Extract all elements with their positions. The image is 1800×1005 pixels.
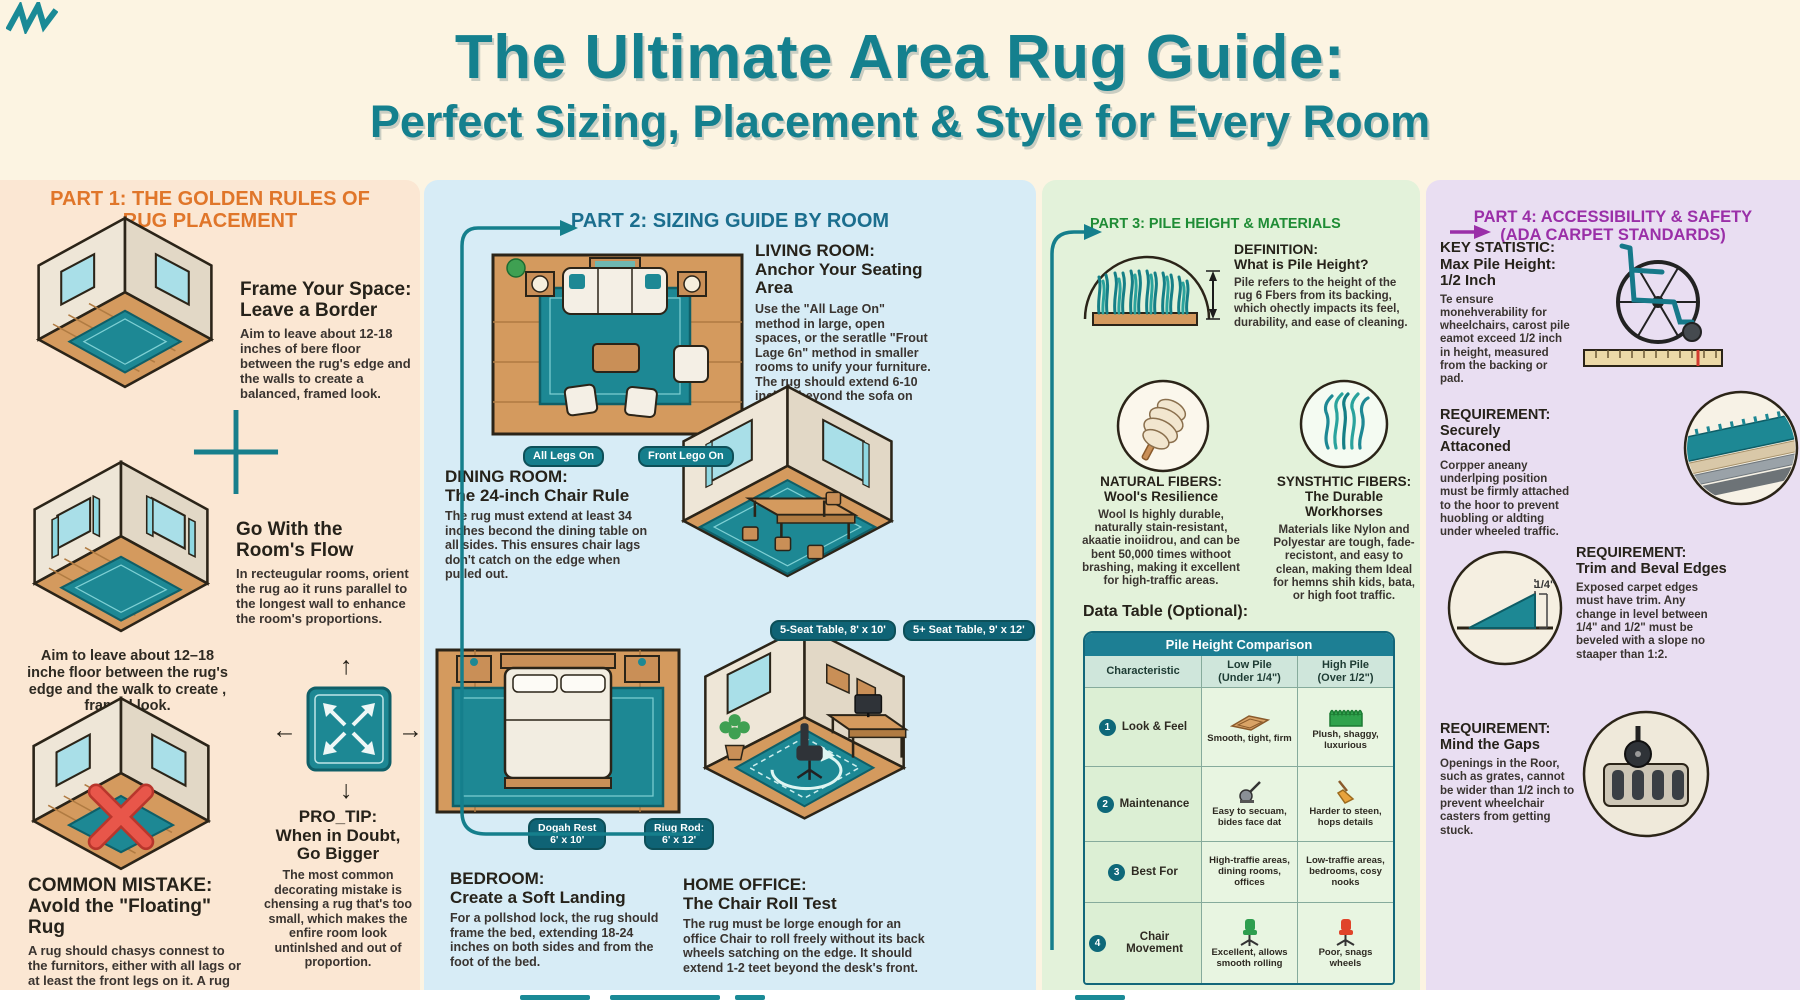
cell-text: Easy to secuam, bides face dat	[1206, 807, 1293, 829]
bedroom-illustration	[435, 648, 681, 814]
home-office-title: HOME OFFICE: The Chair Roll Test	[683, 876, 933, 913]
key-statistic-title: KEY STATISTIC: Max Pile Height: 1/2 Inch	[1440, 240, 1572, 290]
bottom-dash	[520, 995, 590, 1000]
requirement-body: Corpper aneany underlping position must …	[1440, 460, 1572, 540]
data-table-label: Data Table (Optional):	[1083, 603, 1248, 621]
rule-title: Go With the Room's Flow	[236, 520, 416, 562]
arrow-left-icon: ←	[272, 718, 297, 743]
office-chair-red-icon	[1333, 917, 1358, 946]
panel-part4: PART 4: ACCESSIBILITY & SAFETY (ADA CARP…	[1426, 180, 1800, 1005]
flat-rug-icon	[1230, 710, 1270, 732]
home-office-section: HOME OFFICE: The Chair Roll Test The rug…	[683, 876, 933, 975]
definition-title: DEFINITION: What is Pile Height?	[1234, 242, 1412, 273]
requirement-title: REQUIREMENT: Trim and Beval Edges	[1576, 546, 1728, 578]
column-header: Characteristic	[1085, 656, 1201, 687]
rule-title: Frame Your Space: Leave a Border	[240, 280, 412, 322]
cell-text: Low-traffie areas, bedrooms, cosy nooks	[1302, 856, 1389, 889]
key-statistic-body: Te ensure monehverability for wheelchair…	[1440, 294, 1572, 387]
pile-height-comparison-table: Pile Height Comparison Characteristic Lo…	[1083, 631, 1395, 985]
column-header: High Pile (Over 1/2")	[1297, 656, 1393, 687]
cell-text: Harder to steen, hops details	[1302, 807, 1389, 829]
arrow-up-icon: ↑	[340, 654, 353, 679]
arrow-down-icon: ↓	[340, 778, 353, 803]
bevel-annotation: 1/4"	[1535, 579, 1556, 591]
requirement-body: Openings in the Roor, such as grates, ca…	[1440, 758, 1578, 838]
requirement-title: REQUIREMENT: Securely Attaconed	[1440, 408, 1572, 456]
synthetic-fibers-icon	[1298, 378, 1390, 470]
area-rug-guide-poster: The Ultimate Area Rug Guide: Perfect Siz…	[0, 0, 1800, 1005]
natural-fibers-title: NATURAL FIBERS: Wool's Resilience	[1082, 475, 1240, 505]
label-bed-rug-right: Riug Rod: 6' x 12'	[644, 818, 714, 850]
row-name: Best For	[1131, 866, 1178, 878]
requirement-securely-attached-section: REQUIREMENT: Securely Attaconed Corpper …	[1440, 408, 1572, 540]
page-subtitle: Perfect Sizing, Placement & Style for Ev…	[0, 96, 1800, 148]
shag-rug-icon	[1326, 702, 1366, 728]
definition-body: Pile refers to the height of the rug 6 F…	[1234, 277, 1412, 330]
corner-scribble-decoration	[6, 2, 58, 34]
wool-yarn-icon	[1115, 378, 1211, 474]
table-row: 2Maintenance Easy to secuam, bides face …	[1085, 766, 1393, 841]
bottom-dash	[610, 995, 720, 1000]
cell-text: Plush, shaggy, luxurious	[1302, 730, 1389, 752]
requirement-title: REQUIREMENT: Mind the Gaps	[1440, 722, 1578, 754]
pro-tip-title: PRO_TIP: When in Doubt, Go Bigger	[258, 808, 418, 864]
label-bed-rug-left: Dogah Rest 6' x 10'	[528, 818, 606, 850]
pro-tip: PRO_TIP: When in Doubt, Go Bigger The mo…	[258, 808, 418, 970]
bottom-dash	[735, 995, 765, 1000]
label-five-plus-seat-table: 5+ Seat Table, 9' x 12'	[903, 620, 1035, 641]
table-header-row: Characteristic Low Pile (Under 1/4") Hig…	[1085, 656, 1393, 687]
pile-height-illustration	[1075, 238, 1220, 340]
floor-grate-illustration	[1580, 708, 1712, 840]
bedroom-section: BEDROOM: Create a Soft Landing For a pol…	[450, 870, 665, 969]
column-header: Low Pile (Under 1/4")	[1201, 656, 1297, 687]
dining-room-body: The rug must extend at least 34 inches b…	[445, 509, 657, 582]
rule-body: In recteugular rooms, orient the rug ao …	[236, 566, 416, 626]
part3-header: PART 3: PILE HEIGHT & MATERIALS	[1090, 216, 1341, 233]
common-mistake: COMMON MISTAKE: Avold the "Floating" Rug…	[28, 876, 243, 1005]
bottom-dash	[1075, 995, 1125, 1000]
row-name: Maintenance	[1120, 798, 1190, 810]
synthetic-fibers-section: SYNSTHTIC FIBERS: The Durable Workhorses…	[1268, 475, 1420, 604]
requirement-mind-gaps-section: REQUIREMENT: Mind the Gaps Openings in t…	[1440, 722, 1578, 838]
requirement-body: Exposed carpet edges must have trim. Any…	[1576, 582, 1728, 662]
natural-fibers-body: Wool Is highly durable, naturally stain-…	[1082, 509, 1240, 589]
definition-section: DEFINITION: What is Pile Height? Pile re…	[1234, 242, 1412, 330]
bedroom-body: For a pollshod lock, the rug should fram…	[450, 911, 665, 969]
arrow-right-icon: →	[398, 718, 423, 743]
dining-room-section: DINING ROOM: The 24-inch Chair Rule The …	[445, 468, 657, 582]
row-number-badge: 4	[1089, 935, 1106, 952]
pro-tip-body: The most common decorating mistake is ch…	[258, 868, 418, 970]
carpet-layers-illustration	[1681, 388, 1800, 508]
vacuum-icon	[1237, 779, 1263, 805]
iso-room-curtains-illustration	[18, 456, 224, 636]
table-row: 1Look & Feel Smooth, tight, firm Plush, …	[1085, 687, 1393, 766]
label-all-legs-on: All Legs On	[523, 446, 604, 467]
label-five-seat-table: 5-Seat Table, 8' x 10'	[770, 620, 896, 641]
table-title: Pile Height Comparison	[1085, 633, 1393, 656]
part2-header: PART 2: SIZING GUIDE BY ROOM	[530, 210, 930, 232]
office-chair-green-icon	[1237, 917, 1262, 946]
key-statistic-section: KEY STATISTIC: Max Pile Height: 1/2 Inch…	[1440, 240, 1572, 387]
broom-icon	[1333, 779, 1359, 805]
bottom-strip-decoration	[0, 990, 1800, 1005]
dining-room-title: DINING ROOM: The 24-inch Chair Rule	[445, 468, 657, 505]
row-number-badge: 1	[1099, 719, 1116, 736]
home-office-body: The rug must be lorge enough for an offi…	[683, 917, 933, 975]
row-number-badge: 2	[1097, 796, 1114, 813]
label-front-legs-on: Front Lego On	[638, 446, 734, 467]
panel-part1: PART 1: THE GOLDEN RULES OF RUG PLACEMEN…	[0, 180, 420, 1005]
row-name: Look & Feel	[1122, 721, 1187, 733]
cell-text: Smooth, tight, firm	[1207, 734, 1291, 745]
rule-body: Aim to leave about 12-18 inches of bere …	[240, 326, 412, 401]
cell-text: High-traffie areas, dining rooms, office…	[1206, 856, 1293, 889]
page-title: The Ultimate Area Rug Guide:	[0, 22, 1800, 93]
table-row: 3Best For High-traffie areas, dining roo…	[1085, 841, 1393, 902]
panel-part3: PART 3: PILE HEIGHT & MATERIALS DEFINITI…	[1042, 180, 1420, 1005]
iso-room-floating-rug-illustration	[15, 692, 227, 874]
synthetic-fibers-body: Materials like Nylon and Polyestar are t…	[1268, 524, 1420, 604]
rule-rooms-flow: Go With the Room's Flow In recteugular r…	[236, 520, 416, 626]
row-name: Chair Movement	[1112, 931, 1197, 955]
wheelchair-illustration	[1578, 226, 1728, 376]
table-row: 4Chair Movement Excellent, allows smooth…	[1085, 902, 1393, 983]
cell-text: Excellent, allows smooth rolling	[1206, 948, 1293, 970]
requirement-trim-bevel-section: REQUIREMENT: Trim and Beval Edges Expose…	[1576, 546, 1728, 662]
bedroom-title: BEDROOM: Create a Soft Landing	[450, 870, 665, 907]
living-room-title: LIVING ROOM: Anchor Your Seating Area	[755, 242, 931, 298]
iso-room-border-illustration	[22, 212, 228, 392]
dining-room-illustration	[655, 378, 920, 618]
rule-frame-your-space: Frame Your Space: Leave a Border Aim to …	[240, 280, 412, 401]
natural-fibers-section: NATURAL FIBERS: Wool's Resilience Wool I…	[1082, 475, 1240, 589]
bevel-edge-illustration: 1/4"	[1445, 548, 1565, 668]
expand-rug-icon	[304, 684, 394, 774]
mistake-title: COMMON MISTAKE: Avold the "Floating" Rug	[28, 876, 243, 939]
row-number-badge: 3	[1108, 864, 1125, 881]
panel-part2: PART 2: SIZING GUIDE BY ROOM LIVING ROOM…	[424, 180, 1036, 1005]
cell-text: Poor, snags wheels	[1302, 948, 1389, 970]
synthetic-fibers-title: SYNSTHTIC FIBERS: The Durable Workhorses	[1268, 475, 1420, 520]
